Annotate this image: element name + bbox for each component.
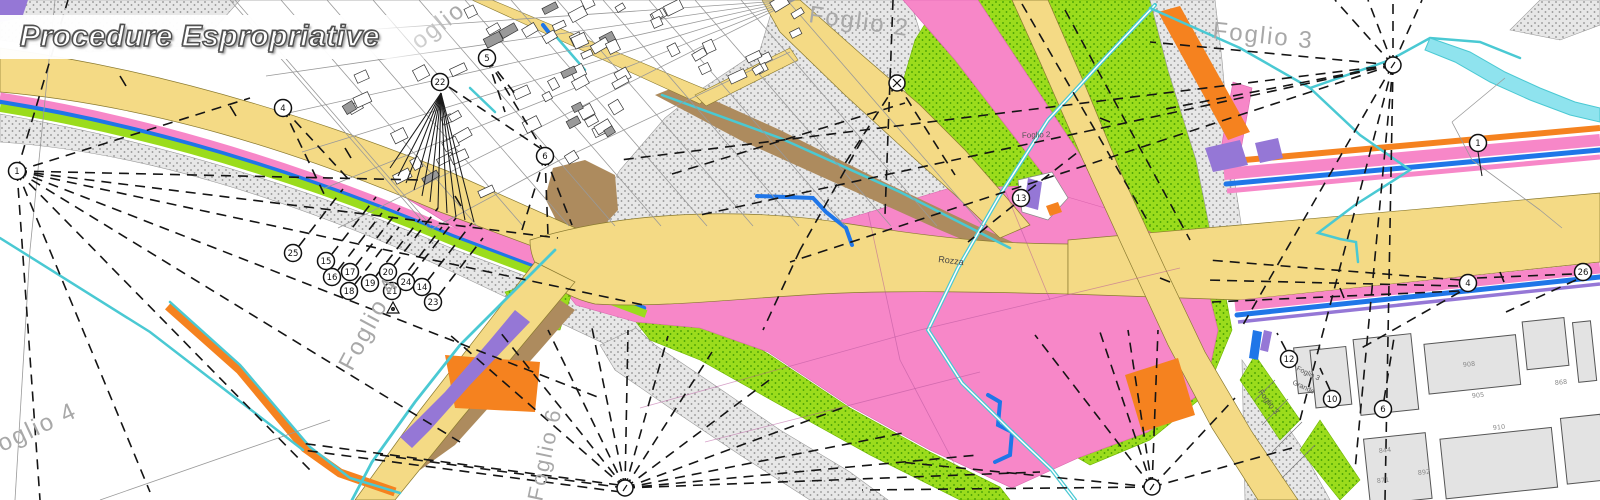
station-marker-17: 17 <box>342 264 359 281</box>
svg-text:4: 4 <box>1465 279 1470 289</box>
svg-text:5: 5 <box>484 54 489 64</box>
svg-text:4: 4 <box>280 104 285 114</box>
svg-text:15: 15 <box>321 257 332 267</box>
svg-text:16: 16 <box>327 273 338 283</box>
parcel-number: 871 <box>1376 476 1389 485</box>
station-marker-5: 5 <box>479 50 496 67</box>
svg-text:26: 26 <box>1578 268 1589 278</box>
survey-node <box>1385 57 1401 73</box>
svg-text:12: 12 <box>1284 355 1295 365</box>
cadastral-map: 142256251516171819202124142313142612106 … <box>0 0 1600 500</box>
svg-text:14: 14 <box>417 283 428 293</box>
station-marker-22: 22 <box>432 74 449 91</box>
parcel-number: 910 <box>1492 423 1505 432</box>
svg-text:17: 17 <box>345 268 356 278</box>
station-marker-18: 18 <box>341 283 358 300</box>
parcel-number: 892 <box>1417 468 1430 477</box>
svg-text:13: 13 <box>1016 194 1027 204</box>
station-marker-4: 4 <box>1460 275 1477 292</box>
station-marker-25: 25 <box>285 245 302 262</box>
parcel-number: 908 <box>1462 360 1475 369</box>
station-marker-1: 1 <box>9 163 26 180</box>
svg-text:6: 6 <box>542 152 547 162</box>
survey-node <box>889 75 905 91</box>
station-marker-16: 16 <box>324 269 341 286</box>
station-marker-23: 23 <box>425 294 442 311</box>
station-marker-26: 26 <box>1575 264 1592 281</box>
station-marker-1: 1 <box>1470 135 1487 152</box>
survey-node <box>617 480 633 496</box>
station-marker-4: 4 <box>275 100 292 117</box>
station-marker-6: 6 <box>1375 401 1392 418</box>
station-marker-14: 14 <box>414 279 431 296</box>
station-marker-15: 15 <box>318 253 335 270</box>
svg-text:23: 23 <box>428 298 439 308</box>
parcel-number: 905 <box>1471 391 1484 400</box>
map-page: 142256251516171819202124142313142612106 … <box>0 0 1600 500</box>
station-marker-10: 10 <box>1324 391 1341 408</box>
station-marker-13: 13 <box>1013 190 1030 207</box>
page-title: Procedure Espropriative <box>20 20 380 54</box>
svg-text:6: 6 <box>1380 405 1385 415</box>
sheet-label: Foglio 2 <box>1022 130 1051 140</box>
svg-text:22: 22 <box>435 78 446 88</box>
svg-text:25: 25 <box>288 249 299 259</box>
survey-node <box>1144 479 1160 495</box>
svg-text:1: 1 <box>1475 139 1480 149</box>
svg-text:10: 10 <box>1327 395 1338 405</box>
parcel-number: 868 <box>1554 378 1567 387</box>
station-marker-6: 6 <box>537 148 554 165</box>
svg-text:1: 1 <box>14 167 19 177</box>
svg-text:18: 18 <box>344 287 355 297</box>
parcel-number: 844 <box>1378 446 1391 455</box>
title-banner: Procedure Espropriative <box>0 15 465 59</box>
station-marker-12: 12 <box>1281 351 1298 368</box>
